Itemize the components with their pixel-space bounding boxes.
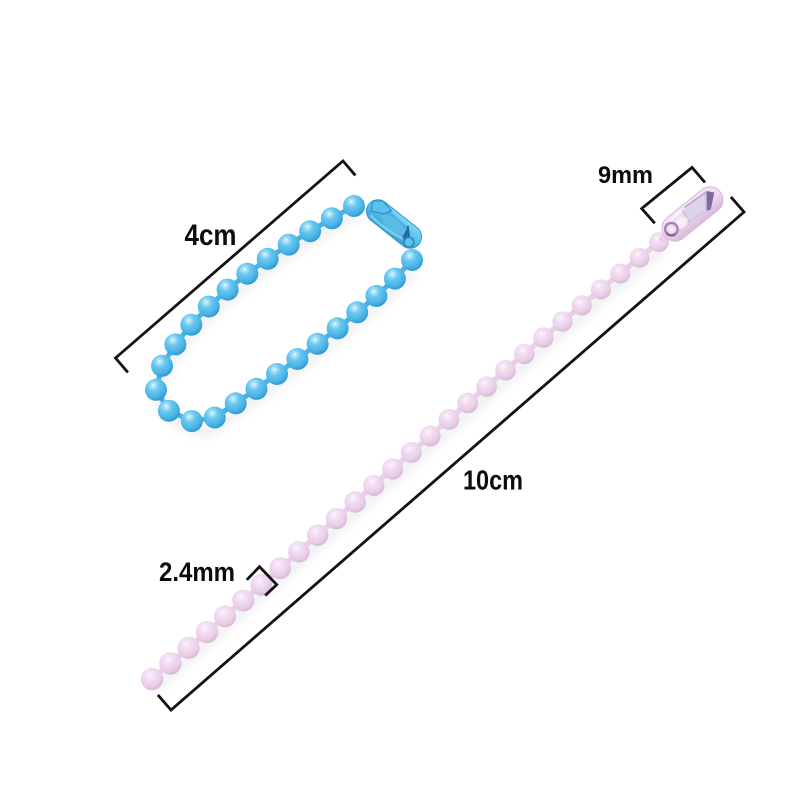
svg-text:9mm: 9mm (598, 162, 653, 189)
svg-text:2.4mm: 2.4mm (159, 557, 235, 587)
svg-text:10cm: 10cm (463, 465, 523, 496)
svg-text:4cm: 4cm (185, 219, 237, 252)
